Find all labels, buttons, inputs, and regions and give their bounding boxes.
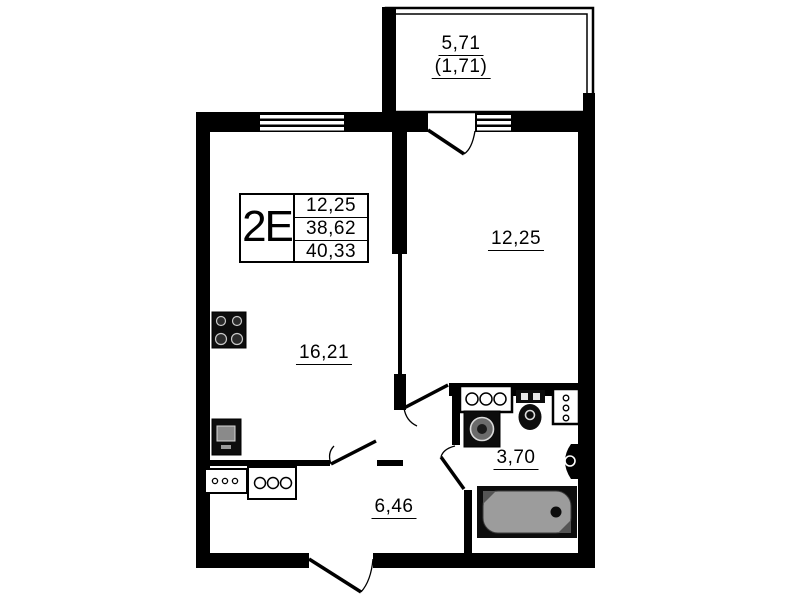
washing-machine-icon <box>464 411 500 447</box>
floor-plan: 5,71 (1,71) 12,25 16,21 6,46 3,70 2E 12,… <box>0 0 799 600</box>
balcony-area-label: 5,71 <box>439 33 484 56</box>
kitchen-sink-icon <box>212 419 241 455</box>
wall-living-bottom-b <box>377 460 403 466</box>
shelf-icon <box>553 389 579 424</box>
balcony-area-secondary-label: (1,71) <box>432 56 491 79</box>
wall-interior-thick <box>392 112 407 254</box>
wall-living-bottom-a <box>210 460 330 466</box>
unit-area-row: 12,25 <box>295 195 367 217</box>
wall-right <box>578 112 595 568</box>
unit-legend: 2E 12,25 38,62 40,33 <box>239 193 369 263</box>
window-living <box>258 112 346 132</box>
toilet-icon <box>516 390 545 430</box>
bedroom-area-label: 12,25 <box>488 228 544 251</box>
hallway-area-label: 6,46 <box>372 496 417 519</box>
entrance-door-icon <box>309 559 373 592</box>
wall-left <box>196 112 210 568</box>
wall-interior-thin <box>398 254 402 374</box>
balcony-wall-left <box>382 7 396 112</box>
counter-icon <box>205 467 296 499</box>
window-bedroom <box>475 112 513 132</box>
wall-top-c <box>513 112 595 132</box>
washbasin-icon <box>460 386 512 412</box>
unit-area-row: 40,33 <box>295 240 367 263</box>
stove-icon <box>212 312 246 348</box>
unit-code: 2E <box>241 195 295 261</box>
wall-top-b <box>346 112 428 132</box>
wall-bathroom-left-lower <box>464 490 472 553</box>
unit-area-row: 38,62 <box>295 217 367 240</box>
bathroom-door-icon <box>441 446 464 489</box>
vent-icon <box>565 444 579 479</box>
bedroom-door-icon <box>404 385 448 426</box>
living-kitchen-area-label: 16,21 <box>296 342 352 365</box>
living-door-icon <box>330 441 376 464</box>
wall-interior-lower <box>394 374 406 410</box>
bathtub-icon <box>477 486 577 538</box>
wall-bottom-left <box>196 553 309 568</box>
unit-areas: 12,25 38,62 40,33 <box>295 195 367 261</box>
balcony-door-icon <box>428 130 475 154</box>
bathroom-area-label: 3,70 <box>494 447 539 470</box>
wall-top-a <box>196 112 258 132</box>
wall-bottom-right <box>373 553 595 568</box>
